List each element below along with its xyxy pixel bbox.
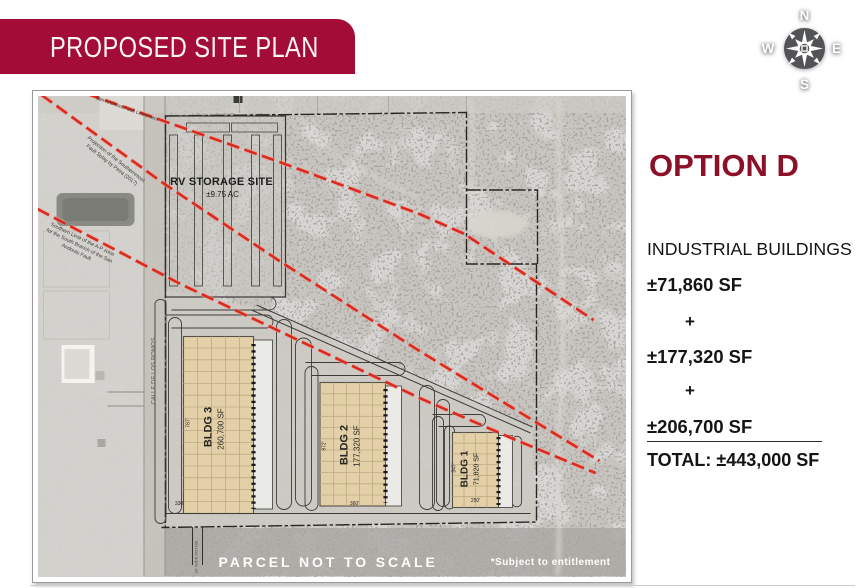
svg-text:360': 360' <box>350 501 359 507</box>
svg-text:CALLE DE LOS ROMOS: CALLE DE LOS ROMOS <box>152 337 158 404</box>
svg-text:BLDG 1: BLDG 1 <box>460 450 471 487</box>
svg-text:PARCEL NOT TO SCALE: PARCEL NOT TO SCALE <box>219 554 438 570</box>
svg-text:30' WIDE DOTHIE: 30' WIDE DOTHIE <box>194 540 199 573</box>
svg-text:260,700 SF: 260,700 SF <box>217 408 226 449</box>
svg-text:BLDG 3: BLDG 3 <box>203 407 215 447</box>
svg-text:71,820 SF: 71,820 SF <box>474 453 481 485</box>
svg-text:S: S <box>800 77 809 92</box>
svg-text:250': 250' <box>471 498 480 504</box>
svg-text:W: W <box>762 41 775 56</box>
svg-text:177,320 SF: 177,320 SF <box>353 425 362 466</box>
svg-text:RV STORAGE SITE: RV STORAGE SITE <box>170 176 273 188</box>
svg-text:±9.75 AC: ±9.75 AC <box>206 190 239 199</box>
svg-text:972': 972' <box>322 441 328 450</box>
svg-text:347': 347' <box>452 463 458 472</box>
svg-text:*Subject to entitlement: *Subject to entitlement <box>491 557 611 568</box>
svg-text:BLDG 2: BLDG 2 <box>339 425 351 465</box>
svg-text:330': 330' <box>175 501 184 507</box>
svg-text:787': 787' <box>186 418 192 427</box>
svg-text:E: E <box>832 41 841 56</box>
svg-text:N: N <box>800 8 810 23</box>
